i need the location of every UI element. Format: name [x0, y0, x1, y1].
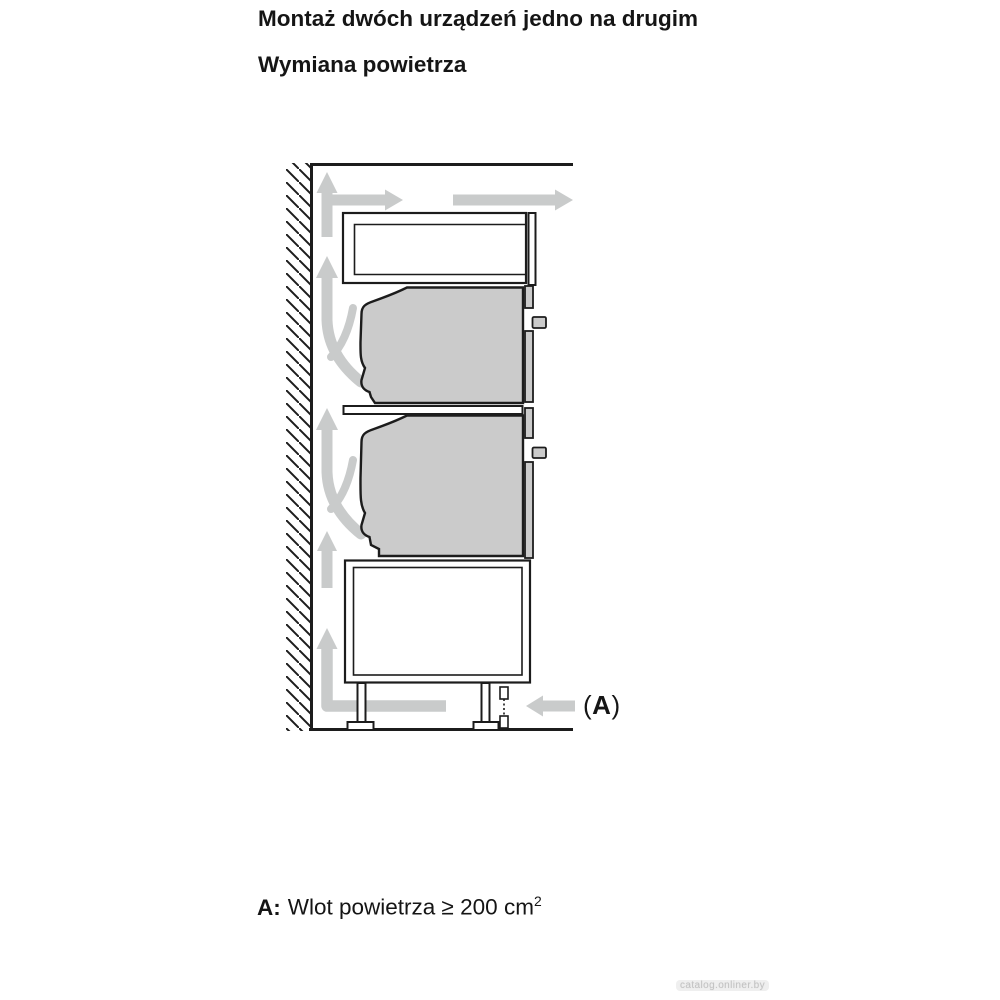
bottom-cabinet-inner	[354, 568, 523, 676]
lower-oven-body	[360, 416, 523, 557]
lower-oven	[360, 408, 546, 558]
callout-paren-open: (	[583, 690, 592, 720]
airflow-right-arrow-long	[453, 190, 573, 211]
upper-oven-handle	[533, 317, 547, 328]
callout-paren-close: )	[611, 690, 620, 720]
note-superscript: 2	[534, 893, 542, 909]
callout-letter-a: A	[592, 690, 611, 720]
upper-oven-door-top	[525, 286, 533, 308]
note-text: Wlot powietrza ≥ 200 cm	[288, 895, 534, 920]
manual-page: Montaż dwóch urządzeń jedno na drugim Wy…	[0, 0, 1000, 1000]
airflow-curved-arrow-lower	[316, 408, 361, 534]
installation-diagram	[0, 0, 1000, 1000]
inlet-spacer-top	[500, 687, 508, 699]
air-inlet-callout: (A)	[583, 690, 621, 721]
lower-oven-door-front	[525, 462, 533, 558]
watermark: catalog.onliner.by	[676, 980, 769, 991]
upper-oven-body	[360, 288, 523, 404]
air-inlet-arrow	[526, 696, 575, 717]
lower-oven-handle	[533, 448, 547, 459]
airflow-up-arrow-middle	[317, 531, 337, 588]
top-compartment-right-strip	[529, 213, 536, 285]
lower-oven-door-top	[525, 408, 533, 438]
inlet-spacer-bottom	[500, 716, 508, 728]
air-inlet-note: A:Wlot powietrza ≥ 200 cm2	[257, 893, 542, 921]
top-compartment-outer	[343, 213, 526, 283]
note-label: A:	[257, 895, 281, 920]
right-leg	[482, 683, 490, 722]
upper-oven	[360, 286, 546, 403]
divider-shelf	[344, 406, 523, 414]
left-leg	[358, 683, 366, 722]
wall-hatching	[286, 163, 311, 731]
upper-oven-door-front	[525, 331, 533, 402]
left-foot	[348, 722, 374, 730]
right-foot	[474, 722, 499, 730]
